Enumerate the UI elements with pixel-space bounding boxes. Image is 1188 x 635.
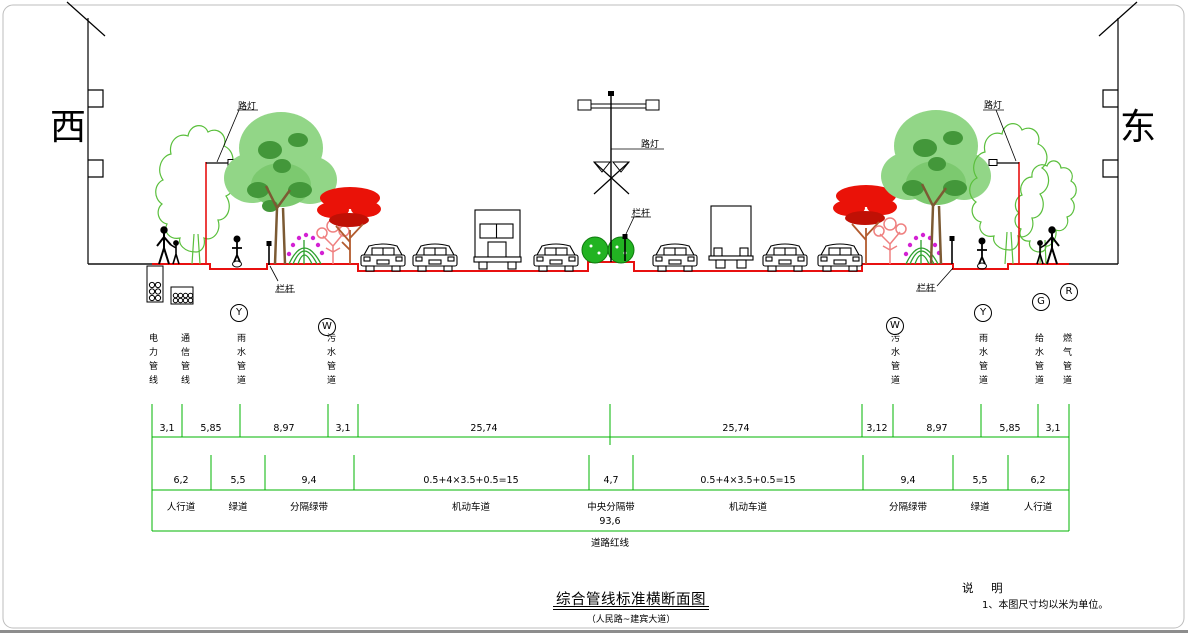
dim-row2-1: 5,5 (230, 475, 245, 486)
vehicles-west (361, 210, 578, 271)
central-median (578, 91, 664, 263)
cyclist-west (232, 236, 242, 267)
power-duct-bank (147, 266, 163, 302)
truck-west (474, 210, 521, 269)
dim-row1-3: 3,1 (335, 423, 350, 434)
drawing-subtitle: （人民路~建宾大道） (587, 612, 676, 625)
ground-line (88, 262, 1118, 271)
tree-large-west (224, 112, 337, 264)
water-supply-symbol: G (1032, 293, 1050, 311)
pipe-sewage-label-east: 污水管道 (888, 333, 899, 389)
dim-row2-5: 0.5+4×3.5+0.5=15 (700, 475, 795, 486)
zone-greenway-west: 绿道 (228, 499, 247, 513)
lamp-leader-east (996, 110, 1016, 161)
dim-total-width: 93,6 (599, 516, 620, 527)
notes-heading: 说 明 (962, 580, 1010, 596)
shrub-magenta-east (904, 233, 941, 264)
dim-row2-2: 9,4 (301, 475, 316, 486)
pipe-sewage-label-west: 污水管道 (324, 333, 335, 389)
trees-outline-east (970, 124, 1077, 264)
tree-pink-east (874, 218, 906, 264)
dim-row1-4: 25,74 (470, 423, 497, 434)
vehicles-east (653, 206, 862, 271)
tree-outline-west (156, 126, 235, 264)
notes-item-1: 1、本图尺寸均以米为单位。 (982, 596, 1108, 611)
dim-row2-7: 5,5 (972, 475, 987, 486)
title-underline-1 (553, 606, 709, 607)
dim-row1-5: 25,74 (722, 423, 749, 434)
dim-row1-9: 3,1 (1045, 423, 1060, 434)
pipe-gas-label: 燃气管道 (1060, 333, 1071, 389)
dim-row1-0: 3,1 (159, 423, 174, 434)
lamp-leader-west (217, 110, 239, 162)
dim-row2-3: 0.5+4×3.5+0.5=15 (423, 475, 518, 486)
zone-carriageway-east: 机动车道 (729, 499, 767, 513)
dim-row2-8: 6,2 (1030, 475, 1045, 486)
zone-belt-west: 分隔绿带 (290, 499, 328, 513)
telecom-duct-bank (171, 287, 193, 304)
rainwater-symbol-west: Y (230, 304, 248, 322)
dim-row1-7: 8,97 (926, 423, 947, 434)
pipe-rainwater-label-east: 雨水管道 (976, 333, 987, 389)
lamp-label-east: 路灯 (984, 98, 1002, 111)
zone-central-median: 中央分隔带 (587, 499, 635, 513)
cyclist-east (977, 238, 987, 269)
pipe-telecom-label: 通信管线 (178, 333, 189, 389)
dim-row2-4: 4,7 (603, 475, 618, 486)
cross-section-sheet: 西 东 路灯 路灯 路灯 栏杆 栏杆 栏杆 Y W W Y G R 电力管线 通… (0, 0, 1188, 635)
dim-row1-2: 8,97 (273, 423, 294, 434)
dim-row1-8: 5,85 (999, 423, 1020, 434)
dim-row2-0: 6,2 (173, 475, 188, 486)
zone-greenway-east: 绿道 (970, 499, 989, 513)
pipe-rainwater-label-west: 雨水管道 (234, 333, 245, 389)
pipe-water-supply-label: 给水管道 (1032, 333, 1043, 389)
pipe-power-label: 电力管线 (146, 333, 157, 389)
compass-west: 西 (50, 98, 86, 150)
railing-label-center: 栏杆 (632, 206, 650, 219)
compass-east: 东 (1120, 98, 1156, 150)
road-red-line-label: 道路红线 (591, 535, 629, 549)
lamp-label-west: 路灯 (238, 99, 256, 112)
railing-label-west: 栏杆 (276, 282, 294, 295)
zone-sidewalk-east: 人行道 (1024, 499, 1053, 513)
dim-row1-6: 3,12 (866, 423, 887, 434)
rainwater-symbol-east: Y (974, 304, 992, 322)
truck-east (709, 206, 753, 268)
zone-carriageway-west: 机动车道 (452, 499, 490, 513)
tree-large-east (881, 110, 991, 264)
dim-row2-6: 9,4 (900, 475, 915, 486)
railing-label-east: 栏杆 (917, 281, 935, 294)
street-lamp-center (578, 91, 664, 262)
title-underline-2 (553, 609, 709, 610)
zone-belt-east: 分隔绿带 (889, 499, 927, 513)
pedestrians-west (157, 227, 179, 264)
gas-symbol: R (1060, 283, 1078, 301)
dim-row1-1: 5,85 (200, 423, 221, 434)
lamp-label-center: 路灯 (641, 137, 659, 150)
zone-sidewalk-west: 人行道 (167, 499, 196, 513)
